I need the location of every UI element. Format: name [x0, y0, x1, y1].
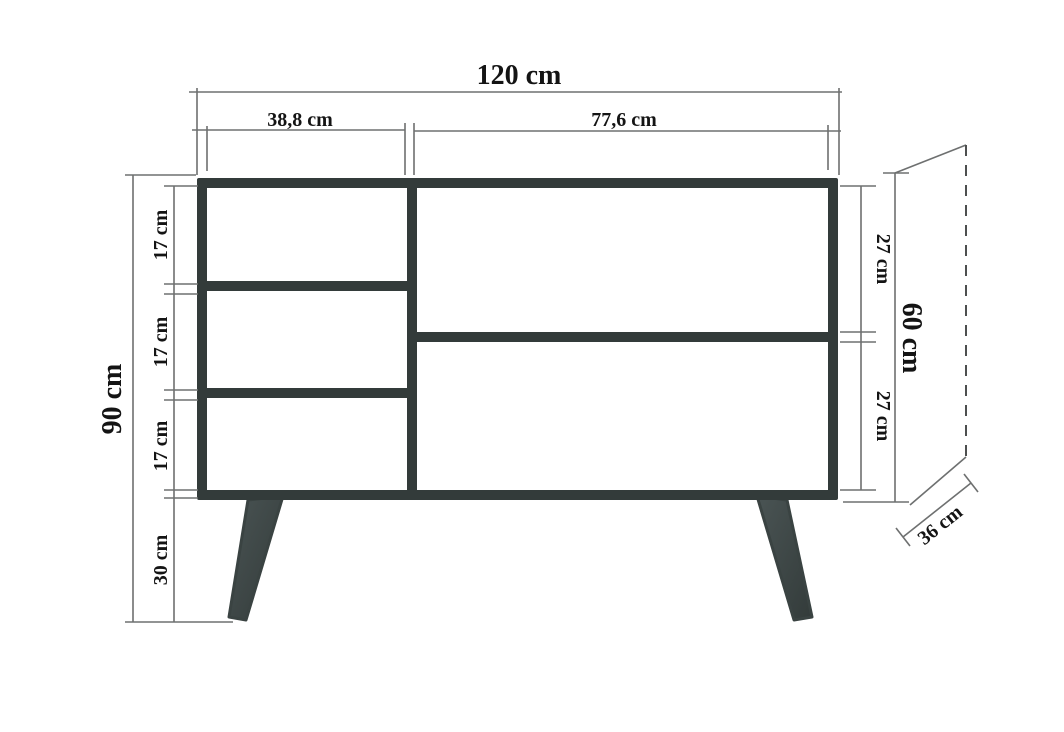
tick-depth-start	[896, 528, 910, 546]
drawing-canvas: 120 cm 38,8 cm 77,6 cm 90 cm 17 cm 17 cm…	[0, 0, 1064, 732]
label-left-compartment-1: 17 cm	[150, 209, 172, 260]
cabinet	[197, 178, 838, 620]
tick-depth-end	[964, 474, 978, 492]
label-total-width: 120 cm	[477, 60, 562, 91]
label-left-section-width: 38,8 cm	[267, 109, 333, 131]
right-compartment-bottom	[417, 342, 828, 490]
label-right-section-width: 77,6 cm	[591, 109, 657, 131]
label-right-compartment-top: 27 cm	[872, 234, 894, 285]
label-leg-height: 30 cm	[150, 534, 172, 585]
label-total-height: 90 cm	[97, 364, 128, 435]
label-right-compartment-bottom: 27 cm	[872, 391, 894, 442]
left-compartment-3	[207, 398, 407, 490]
dimension-drawing: 120 cm 38,8 cm 77,6 cm 90 cm 17 cm 17 cm…	[0, 0, 1064, 732]
cabinet-left-leg	[229, 496, 283, 620]
label-left-compartment-3: 17 cm	[150, 420, 172, 471]
left-compartment-1	[207, 188, 407, 281]
label-left-compartment-2: 17 cm	[150, 316, 172, 367]
depth-projection-bottom	[910, 457, 966, 505]
label-body-height: 60 cm	[896, 303, 927, 374]
depth-projection-top	[895, 145, 966, 173]
right-compartment-top	[417, 188, 828, 332]
left-compartment-2	[207, 291, 407, 388]
cabinet-right-leg	[757, 496, 812, 620]
